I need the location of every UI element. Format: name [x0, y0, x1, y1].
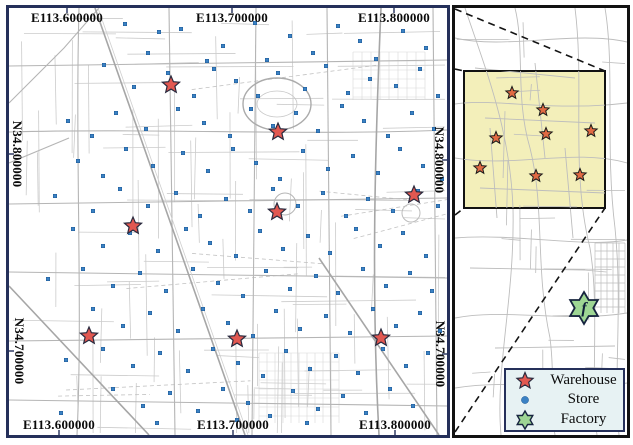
factory-star-icon	[513, 409, 537, 430]
warehouse-marker	[228, 330, 245, 346]
store-marker	[212, 67, 216, 71]
store-marker	[348, 331, 352, 335]
store-marker	[164, 289, 168, 293]
store-marker	[111, 284, 115, 288]
store-marker	[158, 351, 162, 355]
store-marker	[424, 254, 428, 258]
store-marker	[328, 251, 332, 255]
store-marker	[246, 401, 250, 405]
store-marker	[226, 321, 230, 325]
legend: Warehouse Store Factory	[504, 368, 625, 432]
store-marker	[298, 327, 302, 331]
store-marker	[316, 407, 320, 411]
store-marker	[386, 134, 390, 138]
zoom-connector-line	[455, 9, 605, 71]
store-marker	[201, 307, 205, 311]
store-marker	[141, 404, 145, 408]
store-marker	[64, 358, 68, 362]
store-marker	[436, 204, 440, 208]
store-marker	[410, 111, 414, 115]
store-marker	[368, 77, 372, 81]
store-marker	[174, 191, 178, 195]
store-marker	[224, 197, 228, 201]
store-marker	[254, 161, 258, 165]
store-marker	[408, 271, 412, 275]
store-marker	[411, 404, 415, 408]
axis-label-top-e113-8: E113.800000	[358, 10, 430, 26]
store-marker	[198, 214, 202, 218]
store-marker	[208, 241, 212, 245]
store-marker	[146, 204, 150, 208]
store-marker	[234, 79, 238, 83]
legend-item-factory: Factory	[506, 410, 623, 429]
store-marker	[398, 147, 402, 151]
legend-label-factory: Factory	[544, 412, 623, 427]
store-marker	[361, 267, 365, 271]
store-marker	[111, 387, 115, 391]
axis-label-right-n34-8: N34.800000	[431, 127, 447, 194]
store-marker	[404, 364, 408, 368]
store-marker	[138, 271, 142, 275]
store-marker	[424, 46, 428, 50]
store-marker	[394, 324, 398, 328]
store-marker	[191, 267, 195, 271]
store-marker	[418, 311, 422, 315]
store-marker	[176, 329, 180, 333]
store-marker	[356, 371, 360, 375]
store-marker	[276, 71, 280, 75]
store-marker	[90, 134, 94, 138]
warehouse-star-icon	[513, 371, 537, 390]
store-marker	[228, 134, 232, 138]
store-marker	[181, 151, 185, 155]
store-marker	[186, 369, 190, 373]
store-marker	[184, 227, 188, 231]
store-marker	[192, 94, 196, 98]
store-marker	[236, 361, 240, 365]
store-marker	[308, 367, 312, 371]
store-marker	[264, 269, 268, 273]
store-marker	[378, 244, 382, 248]
store-marker	[288, 34, 292, 38]
store-marker	[436, 94, 440, 98]
axis-label-bottom-e113-6: E113.600000	[23, 417, 95, 433]
store-marker	[281, 247, 285, 251]
store-marker	[76, 159, 80, 163]
store-marker	[301, 149, 305, 153]
store-marker	[303, 87, 307, 91]
store-marker	[288, 287, 292, 291]
store-marker	[291, 389, 295, 393]
store-marker	[156, 249, 160, 253]
store-marker	[401, 29, 405, 33]
store-marker	[205, 59, 209, 63]
axis-label-bottom-e113-7: E113.700000	[197, 417, 269, 433]
store-marker	[364, 411, 368, 415]
store-marker	[148, 311, 152, 315]
store-marker	[46, 277, 50, 281]
store-marker	[265, 58, 269, 62]
figure-map-screenshot: E113.600000 E113.700000 E113.800000 E113…	[0, 0, 633, 445]
store-marker	[118, 187, 122, 191]
store-marker	[251, 334, 255, 338]
axis-label-left-n34-7: N34.700000	[11, 318, 27, 385]
store-marker	[371, 307, 375, 311]
store-marker	[234, 254, 238, 258]
store-marker	[102, 63, 106, 67]
store-marker	[388, 387, 392, 391]
inset-map: f Warehouse Store Factory	[452, 5, 630, 438]
store-marker	[305, 421, 309, 425]
store-marker	[394, 84, 398, 88]
store-marker	[132, 85, 136, 89]
legend-label-warehouse: Warehouse	[544, 373, 623, 388]
store-marker	[221, 44, 225, 48]
store-marker	[231, 147, 235, 151]
store-marker	[346, 91, 350, 95]
store-marker	[121, 324, 125, 328]
store-marker	[123, 22, 127, 26]
store-marker	[59, 411, 63, 415]
store-marker	[71, 227, 75, 231]
axis-label-left-n34-8: N34.800000	[9, 121, 25, 188]
store-marker	[278, 177, 282, 181]
store-marker	[249, 107, 253, 111]
store-marker	[336, 24, 340, 28]
store-marker	[374, 57, 378, 61]
store-marker	[421, 164, 425, 168]
zoom-connector-line	[455, 208, 464, 215]
store-marker	[271, 187, 275, 191]
store-marker	[334, 354, 338, 358]
store-marker	[101, 244, 105, 248]
warehouse-marker	[372, 329, 389, 345]
store-marker	[202, 121, 206, 125]
store-marker	[256, 94, 260, 98]
store-marker	[384, 284, 388, 288]
store-marker	[146, 51, 150, 55]
store-marker	[168, 391, 172, 395]
store-marker	[81, 267, 85, 271]
store-marker	[124, 147, 128, 151]
store-marker	[91, 209, 95, 213]
main-map: E113.600000 E113.700000 E113.800000 E113…	[6, 5, 450, 438]
store-marker	[324, 314, 328, 318]
store-marker	[344, 214, 348, 218]
store-marker	[354, 227, 358, 231]
store-marker	[391, 209, 395, 213]
axis-label-bottom-e113-8: E113.800000	[359, 417, 431, 433]
store-marker	[401, 231, 405, 235]
store-marker	[155, 421, 159, 425]
warehouse-marker	[268, 203, 285, 219]
warehouse-marker	[124, 217, 141, 233]
store-marker	[114, 111, 118, 115]
highlight-region	[464, 71, 605, 208]
store-marker	[376, 171, 380, 175]
store-marker	[241, 294, 245, 298]
axis-ticks	[9, 8, 447, 435]
store-marker	[296, 204, 300, 208]
store-marker	[216, 281, 220, 285]
store-marker	[248, 209, 252, 213]
store-marker	[418, 67, 422, 71]
store-marker	[151, 164, 155, 168]
store-marker	[131, 364, 135, 368]
store-dot-icon	[513, 393, 537, 407]
legend-label-store: Store	[544, 392, 623, 407]
store-marker	[306, 234, 310, 238]
store-marker	[206, 169, 210, 173]
store-marker	[101, 174, 105, 178]
store-marker	[316, 129, 320, 133]
zoom-connector-line	[455, 69, 464, 71]
store-marker	[196, 409, 200, 413]
store-marker	[351, 154, 355, 158]
warehouse-marker	[405, 186, 422, 202]
store-marker	[271, 124, 275, 128]
store-marker	[324, 64, 328, 68]
store-marker	[176, 107, 180, 111]
store-marker	[362, 119, 366, 123]
axis-label-top-e113-6: E113.600000	[31, 10, 103, 26]
store-marker	[144, 127, 148, 131]
axis-label-top-e113-7: E113.700000	[196, 10, 268, 26]
store-marker	[314, 274, 318, 278]
store-marker	[426, 351, 430, 355]
warehouse-marker	[80, 327, 97, 343]
store-marker	[66, 119, 70, 123]
store-marker	[358, 39, 362, 43]
main-map-markers-canvas	[9, 8, 447, 435]
store-marker	[284, 349, 288, 353]
store-marker	[261, 374, 265, 378]
store-marker	[53, 194, 57, 198]
store-marker	[336, 291, 340, 295]
axis-label-right-n34-7: N34.700000	[432, 321, 448, 388]
store-marker	[366, 197, 370, 201]
store-marker	[274, 309, 278, 313]
store-marker	[430, 289, 434, 293]
store-marker	[326, 167, 330, 171]
store-marker	[101, 347, 105, 351]
store-marker	[341, 394, 345, 398]
store-marker	[381, 347, 385, 351]
store-marker	[166, 71, 170, 75]
legend-item-store: Store	[506, 390, 623, 409]
store-marker	[157, 30, 161, 34]
store-marker	[258, 229, 262, 233]
store-marker	[294, 111, 298, 115]
store-marker	[221, 387, 225, 391]
legend-item-warehouse: Warehouse	[506, 371, 623, 390]
store-marker	[179, 27, 183, 31]
store-marker	[321, 191, 325, 195]
store-marker	[211, 347, 215, 351]
store-marker	[91, 307, 95, 311]
store-marker	[340, 104, 344, 108]
store-marker	[311, 51, 315, 55]
warehouse-marker	[162, 76, 179, 92]
